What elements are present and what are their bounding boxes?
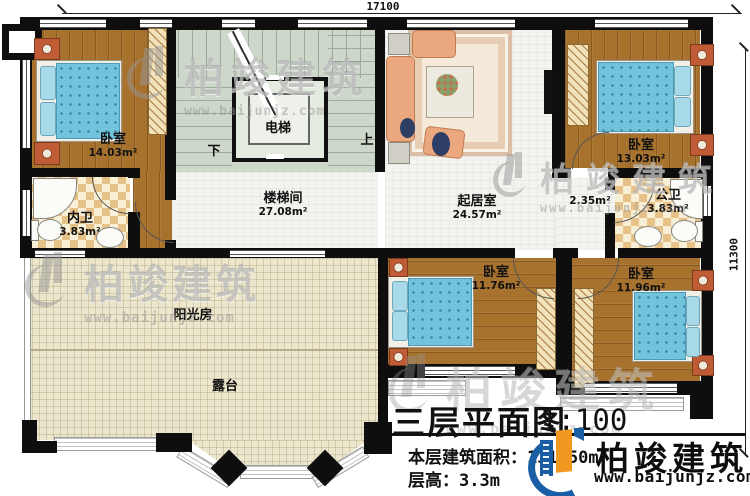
room-area: 27.08m² xyxy=(259,207,308,219)
stair-treads-left xyxy=(172,78,232,166)
room-area: 11.96m² xyxy=(617,283,666,295)
label-bedroom-bc: 卧室 11.76m² xyxy=(472,266,521,292)
figure-2 xyxy=(432,132,450,156)
room-name: 阳光房 xyxy=(173,309,212,324)
nightstand-tr-1 xyxy=(690,44,714,66)
terrace-post-bl-2 xyxy=(22,441,57,453)
dimension-top-value: 17100 xyxy=(366,0,399,13)
room-name: 电梯 xyxy=(265,122,291,137)
floor-area-label: 本层建筑面积： xyxy=(408,448,527,468)
window-left-1 xyxy=(22,60,30,148)
wall-mid-right-1 xyxy=(388,248,515,258)
label-corridor-area: 2.35m² xyxy=(569,196,610,208)
elevator-door-bottom xyxy=(266,154,284,159)
figure-1 xyxy=(400,118,415,138)
window-bedroombc xyxy=(425,366,515,376)
nightstand-br-1 xyxy=(692,270,714,291)
dimension-line-top xyxy=(62,13,742,14)
room-area: 11.76m² xyxy=(472,281,521,293)
closet-bedroom-bc xyxy=(536,288,556,370)
bed-br-pillow-1 xyxy=(686,296,700,326)
label-bedroom-tr: 卧室 13.03m² xyxy=(617,139,666,165)
nightstand-br-2 xyxy=(692,355,714,376)
label-stairs-up: 上 xyxy=(360,129,373,148)
nightstand-tr-2 xyxy=(690,134,714,156)
wall-corner-br xyxy=(690,381,713,419)
tv-wall-unit xyxy=(544,70,553,114)
wall-bedroomtl-bath xyxy=(30,168,140,177)
bed-tl-pillow-1 xyxy=(40,66,56,100)
room-name: 公卫 xyxy=(647,189,688,204)
wall-living-bedroomtr xyxy=(552,17,565,178)
wardrobe-bedroom-tl xyxy=(148,28,167,135)
brand-website: www.baijunjz.com xyxy=(594,467,750,486)
label-stairs-down: 下 xyxy=(207,140,220,159)
room-name: 起居室 xyxy=(453,195,502,210)
room-area: 3.83m² xyxy=(647,204,688,216)
room-area: 2.35m² xyxy=(569,196,610,208)
sunroom-floor xyxy=(25,258,378,350)
room-name: 楼梯间 xyxy=(259,192,308,207)
sink-public-bath xyxy=(634,226,662,247)
sunroom-terrace-divider xyxy=(25,349,378,351)
window-top-4 xyxy=(298,19,367,28)
logo-building-blue xyxy=(540,440,553,476)
wall-innerbath-1 xyxy=(128,168,140,178)
table-plant xyxy=(436,74,458,96)
side-table-1 xyxy=(388,33,410,55)
nightstand-bc-1 xyxy=(389,258,408,277)
sunroom-glass-wall xyxy=(24,258,31,440)
label-sunroom: 阳光房 xyxy=(173,309,212,324)
logo-flag xyxy=(574,428,584,441)
floor-plan-canvas: 卧室 14.03m² 内卫 3.83m² 电梯 楼梯间 27.08m² 起居室 … xyxy=(0,0,750,496)
wall-bedroomtr-bottom-1 xyxy=(565,168,571,178)
room-name: 卧室 xyxy=(89,133,138,148)
dimension-right-value: 11300 xyxy=(728,233,741,277)
room-area: 24.57m² xyxy=(453,210,502,222)
terrace-post-br xyxy=(364,422,392,454)
room-name: 卧室 xyxy=(617,139,666,154)
window-bedroombr xyxy=(585,383,677,393)
window-top-3 xyxy=(222,19,255,28)
label-elevator: 电梯 xyxy=(265,122,291,137)
room-area: 3.83m² xyxy=(59,227,100,239)
bed-tr-pillow-2 xyxy=(674,97,691,127)
window-sunroom-2 xyxy=(230,250,325,257)
side-table-2 xyxy=(388,142,410,164)
bed-tr-mattress xyxy=(598,62,674,132)
window-top-6 xyxy=(595,19,688,28)
terrace-rail-left xyxy=(54,437,160,451)
elevator-car xyxy=(248,93,310,145)
room-name: 卧室 xyxy=(617,268,666,283)
terrace-floor xyxy=(25,350,378,440)
floor-height-value: 3.3m xyxy=(459,471,500,491)
wall-bedroomtr-bottom-2 xyxy=(608,168,713,178)
room-name: 露台 xyxy=(212,380,238,395)
armchair-top xyxy=(412,30,456,58)
floor-height-label: 层高： xyxy=(408,471,459,491)
brand-logo-icon xyxy=(528,428,592,490)
bed-tl-mattress xyxy=(56,63,120,139)
wall-terrace-bedroombc xyxy=(378,248,388,425)
label-stairwell: 楼梯间 27.08m² xyxy=(259,192,308,218)
bed-tr-pillow-1 xyxy=(674,66,691,96)
wall-stairs-living xyxy=(375,17,385,172)
nightstand-tl-1 xyxy=(34,38,60,60)
wall-mid-right-3 xyxy=(618,248,713,258)
floor-height-line: 层高：3.3m xyxy=(408,466,500,491)
window-right-1 xyxy=(703,186,711,216)
label-living: 起居室 24.57m² xyxy=(453,195,502,221)
window-left-2 xyxy=(22,190,30,236)
label-bedroom-br: 卧室 11.96m² xyxy=(617,268,666,294)
window-top-5 xyxy=(407,19,515,28)
window-top-2 xyxy=(140,19,172,28)
nightstand-tl-2 xyxy=(34,142,60,165)
nightstand-bc-2 xyxy=(389,348,408,366)
bed-br-mattress xyxy=(634,292,686,360)
bed-tl-pillow-2 xyxy=(40,102,56,136)
label-inner-bath: 内卫 3.83m² xyxy=(59,212,100,238)
room-name: 卧室 xyxy=(472,266,521,281)
elevator-door-top xyxy=(266,75,284,80)
label-bedroom-tl: 卧室 14.03m² xyxy=(89,133,138,159)
terrace-post-1 xyxy=(156,433,192,452)
toilet-public-bath xyxy=(671,220,698,242)
label-terrace: 露台 xyxy=(212,380,238,395)
dimension-line-right xyxy=(745,48,746,456)
bedroombc-window-sill xyxy=(388,380,466,396)
bed-bc-mattress xyxy=(408,278,472,346)
bed-bc-pillow-1 xyxy=(392,281,408,311)
closet-bedroom-br xyxy=(574,288,594,388)
wardrobe-bedroom-tr xyxy=(567,44,589,126)
room-area: 13.03m² xyxy=(617,154,666,166)
room-area: 14.03m² xyxy=(89,148,138,160)
dimension-tick-top xyxy=(739,42,749,52)
window-top-1 xyxy=(40,19,106,28)
label-public-bath: 公卫 3.83m² xyxy=(647,189,688,215)
room-name: 内卫 xyxy=(59,212,100,227)
wall-bedroombc-br xyxy=(556,248,572,383)
logo-building-orange xyxy=(556,429,572,472)
bed-br-pillow-2 xyxy=(686,327,700,357)
bed-bc-pillow-2 xyxy=(392,311,408,341)
window-sunroom-1 xyxy=(35,250,85,257)
